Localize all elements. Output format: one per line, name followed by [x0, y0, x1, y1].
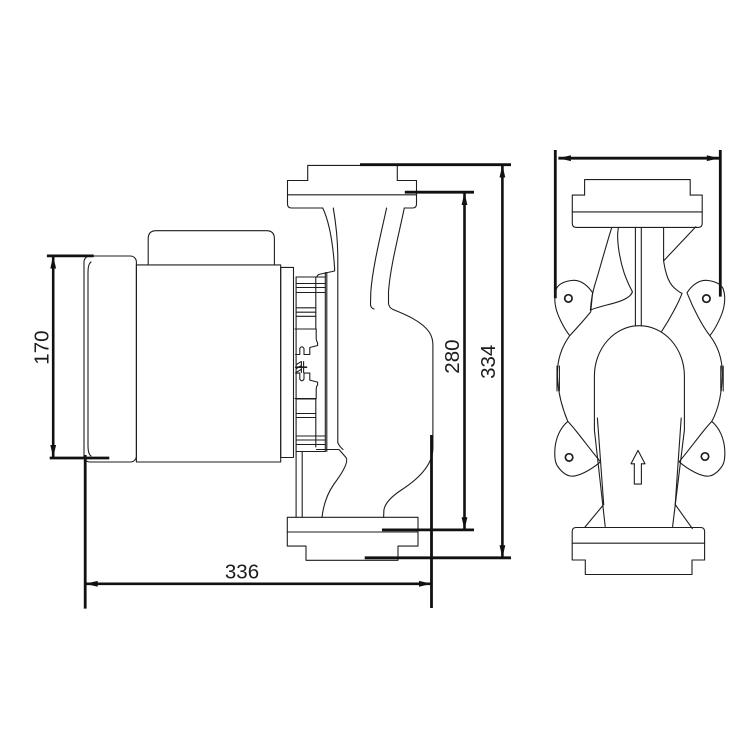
svg-text:170: 170	[31, 330, 54, 364]
svg-text:336: 336	[225, 561, 259, 584]
svg-text:280: 280	[441, 339, 464, 373]
svg-text:334: 334	[477, 345, 500, 379]
